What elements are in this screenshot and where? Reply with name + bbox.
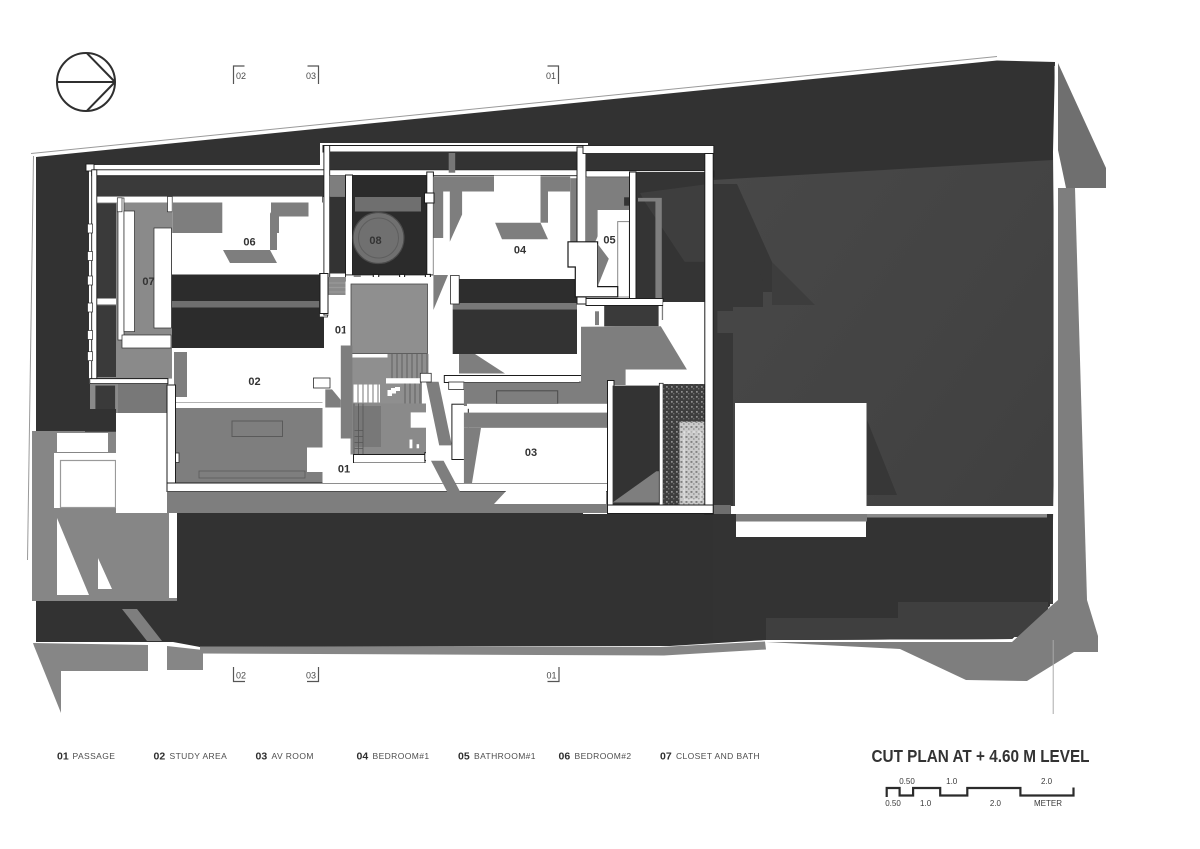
svg-text:06: 06 [559, 751, 571, 763]
svg-text:01: 01 [338, 464, 350, 476]
svg-text:2.0: 2.0 [1041, 777, 1053, 786]
svg-text:PASSAGE: PASSAGE [73, 751, 116, 761]
svg-text:01: 01 [546, 671, 556, 681]
svg-text:BATHROOM#1: BATHROOM#1 [474, 751, 536, 761]
svg-text:CUT PLAN AT + 4.60 M LEVEL: CUT PLAN AT + 4.60 M LEVEL [872, 746, 1090, 766]
svg-text:03: 03 [306, 671, 316, 681]
svg-text:STUDY AREA: STUDY AREA [170, 751, 228, 761]
svg-text:03: 03 [306, 71, 316, 81]
svg-text:METER: METER [1034, 799, 1062, 808]
svg-text:04: 04 [357, 751, 369, 763]
svg-text:05: 05 [603, 235, 615, 247]
svg-text:1.0: 1.0 [920, 799, 932, 808]
svg-text:BEDROOM#2: BEDROOM#2 [575, 751, 632, 761]
svg-text:02: 02 [236, 671, 246, 681]
svg-text:AV ROOM: AV ROOM [272, 751, 314, 761]
svg-text:04: 04 [514, 245, 527, 257]
svg-text:02: 02 [248, 376, 260, 388]
svg-text:05: 05 [458, 751, 470, 763]
svg-text:BEDROOM#1: BEDROOM#1 [373, 751, 430, 761]
svg-text:2.0: 2.0 [990, 799, 1002, 808]
svg-text:CLOSET AND BATH: CLOSET AND BATH [676, 751, 760, 761]
svg-text:03: 03 [525, 447, 537, 459]
svg-text:01: 01 [546, 71, 556, 81]
svg-text:01: 01 [57, 751, 69, 763]
svg-text:0.50: 0.50 [885, 799, 901, 808]
svg-text:01: 01 [335, 325, 347, 337]
svg-text:08: 08 [369, 235, 381, 247]
svg-text:02: 02 [236, 71, 246, 81]
svg-text:07: 07 [660, 751, 672, 763]
svg-text:06: 06 [243, 237, 255, 249]
svg-text:07: 07 [142, 276, 154, 288]
svg-text:0.50: 0.50 [899, 777, 915, 786]
svg-text:02: 02 [154, 751, 166, 763]
svg-text:03: 03 [256, 751, 268, 763]
svg-text:1.0: 1.0 [946, 777, 958, 786]
